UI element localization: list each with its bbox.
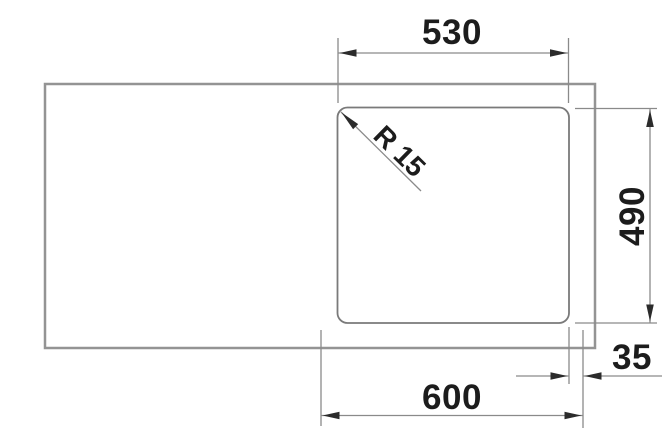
technical-drawing-canvas: 530 490 35 600 — [0, 0, 666, 440]
arrowhead-right-icon — [550, 49, 567, 57]
arrowhead-down-icon — [646, 305, 654, 322]
dimension-label-cutout-width: 530 — [422, 13, 482, 52]
dimension-label-cutout-depth: 490 — [613, 186, 652, 246]
radius-callout: R 15 — [339, 110, 432, 191]
sink-cutout-drawing: 530 490 35 600 — [0, 0, 666, 440]
arrowhead-left-icon — [340, 49, 357, 57]
arrowhead-up-icon — [646, 110, 654, 127]
arrowhead-right-icon — [551, 372, 568, 380]
dimension-label-cabinet-width: 600 — [422, 378, 482, 417]
dimension-label-edge-offset: 35 — [612, 338, 652, 377]
arrowhead-corner-icon — [339, 110, 358, 129]
dimension-cutout-width: 530 — [338, 13, 569, 103]
dimension-cabinet-width: 600 — [321, 330, 583, 426]
arrowhead-left-icon — [585, 372, 602, 380]
radius-label: R 15 — [368, 119, 432, 183]
arrowhead-right-icon — [565, 412, 582, 420]
arrowhead-left-icon — [323, 412, 340, 420]
dimension-cutout-depth: 490 — [575, 109, 657, 324]
worktop-outline — [45, 84, 595, 348]
dimension-edge-offset: 35 — [516, 327, 662, 428]
